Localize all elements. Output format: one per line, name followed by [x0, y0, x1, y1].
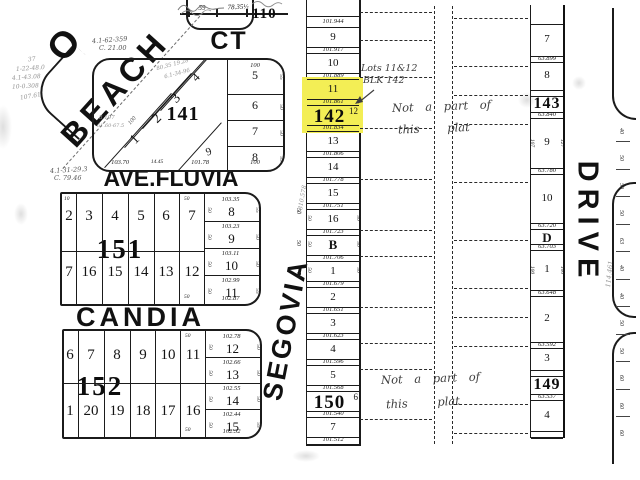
lot-number: 7	[179, 208, 205, 225]
dimension-label: 103.35	[204, 196, 257, 203]
lot-number: 12	[179, 264, 205, 281]
lot-number: 9	[204, 231, 259, 247]
frontage-label: 50	[618, 210, 624, 216]
margin-note: 107.61	[20, 91, 42, 102]
block-152: 152 6789101112019181716102.78125050102.6…	[62, 329, 262, 439]
dimension-label: 100	[227, 62, 283, 69]
tick-mark	[616, 389, 630, 390]
lot-number: 4	[189, 70, 204, 85]
lot-number: 6	[153, 208, 179, 225]
lot-number: 14	[205, 393, 260, 409]
tick-mark	[616, 224, 630, 225]
unplatted-dash-line	[454, 240, 528, 241]
lot-number: 16	[180, 403, 206, 420]
lot-line	[62, 251, 204, 252]
lot-number: 10	[204, 258, 259, 274]
tick-mark	[616, 251, 630, 252]
lot-number: 3	[531, 352, 563, 364]
frontage-label: 50	[207, 370, 213, 376]
frontage-label: 50	[207, 396, 213, 402]
unplatted-dash-line	[454, 346, 528, 347]
unplatted-dash-line	[454, 404, 528, 405]
frontage-label: 40	[618, 128, 624, 134]
unplatted-dash-line	[360, 179, 432, 180]
lot-number: 14	[128, 264, 154, 281]
survey-note: C. 79.46	[54, 174, 81, 182]
lot-number: 1	[127, 132, 143, 148]
margin-note: 10-0.308	[12, 82, 39, 90]
dimension-label: 102.44	[205, 411, 258, 418]
frontage-label: 50	[354, 241, 360, 247]
lot-number: 4	[102, 208, 128, 225]
unplatted-dash-line	[454, 317, 528, 318]
margin-note: 1-22-48.0	[16, 64, 45, 73]
edge-dim: 50	[185, 427, 191, 433]
frontage-label: 50	[295, 272, 301, 278]
lot-number: 20	[78, 403, 104, 420]
lot-number: 7	[78, 347, 104, 364]
lot-number: 12	[349, 106, 358, 116]
unplatted-dash-line	[454, 95, 528, 96]
depth-label: 100	[529, 265, 535, 273]
scan-smudge	[292, 450, 320, 462]
frontage-label: 50	[254, 396, 260, 402]
scan-smudge	[14, 203, 28, 225]
unplatted-dash-line	[360, 343, 432, 344]
unplatted-dash-line	[360, 230, 432, 231]
tick-mark	[616, 416, 630, 417]
lot-number: 8	[104, 347, 130, 364]
dimension-label: 102.78	[205, 333, 258, 340]
frontage-label: 50	[277, 130, 283, 136]
dimension-label: 103.23	[204, 223, 257, 230]
dimension-label: 102.87	[204, 295, 257, 302]
lot-number: 9	[204, 145, 213, 158]
frontage-label: 50	[206, 288, 212, 294]
frontage-label: 50	[277, 104, 283, 110]
depth-label: 127	[559, 138, 565, 146]
lot-number: 13	[153, 264, 179, 281]
lot-line	[64, 383, 205, 384]
frontage-label: 60	[618, 403, 624, 409]
curb-line	[612, 8, 636, 120]
dimension-label: 14.45	[144, 159, 170, 165]
lot-number: 15	[102, 264, 128, 281]
unplatted-dash-line	[452, 6, 453, 444]
lot-number: 5	[307, 369, 359, 381]
street-label-ct: CT	[206, 27, 252, 56]
lot-number: 16	[76, 264, 102, 281]
dimension-label: 101.944	[307, 18, 359, 25]
scan-smudge	[572, 76, 586, 90]
lot-number: 12	[205, 341, 260, 357]
frontage-label: 50	[618, 183, 624, 189]
frontage-label: 55	[253, 288, 259, 294]
edge-dim: 50	[185, 333, 191, 339]
frontage-label: 50	[206, 207, 212, 213]
unplatted-dash-line	[454, 288, 528, 289]
frontage-label: 50	[306, 241, 312, 247]
frontage-label: 50	[354, 215, 360, 221]
unplatted-dash-line	[360, 12, 432, 13]
lot-number: B	[307, 237, 359, 253]
frontage-label: 50	[618, 320, 624, 326]
plat-map: 59 78.35½ 110 O BEACH CT AVE.FLUVIA CAND…	[0, 0, 640, 480]
lot-number: 10	[307, 57, 359, 69]
unplatted-dash-line	[434, 6, 435, 444]
lot-number: 5	[128, 208, 154, 225]
frontage-label: 55	[253, 207, 259, 213]
lot-number: 1	[307, 265, 359, 277]
survey-note: C. 21.00	[99, 44, 126, 52]
tick-mark	[616, 334, 630, 335]
frontage-label: 40	[618, 265, 624, 271]
edge-dim: 10	[64, 196, 70, 202]
frontage-label: 50	[295, 208, 301, 214]
unplatted-dash-line	[360, 40, 432, 41]
lot-number: 11	[307, 83, 359, 95]
lot-number: 8	[204, 204, 259, 220]
block-outline-partial	[186, 0, 254, 30]
frontage-label: 55	[277, 156, 283, 162]
frontage-label: 50	[206, 234, 212, 240]
dimension-label: 103.11	[204, 250, 257, 257]
frontage-label: 50	[254, 370, 260, 376]
unplatted-dash-line	[360, 256, 432, 257]
curb-line	[612, 332, 636, 464]
not-part-note-lower: this plat	[386, 393, 479, 412]
lot-number: 9	[307, 31, 359, 43]
lot-number: 10	[155, 347, 181, 364]
frontage-label: 40	[618, 293, 624, 299]
block-number: 141	[158, 103, 208, 126]
unplatted-dash-line	[454, 124, 528, 125]
lot-number: 6	[354, 392, 359, 402]
lots-callout: Lots 11&12	[361, 63, 417, 74]
lot-number: 9	[130, 347, 156, 364]
drive-block-strip: 763.899814363.840963.7801071271063.720D6…	[530, 5, 565, 438]
unplatted-dash-line	[454, 18, 528, 19]
margin-note: 37	[28, 56, 36, 64]
frontage-label: 60	[618, 375, 624, 381]
frontage-label: 50	[207, 344, 213, 350]
unplatted-dash-line	[360, 419, 432, 420]
unplatted-dash-line	[454, 66, 528, 67]
lot-number: 4	[307, 343, 359, 355]
frontage-label: 50	[618, 155, 624, 161]
lot-number: 3	[307, 317, 359, 329]
pencil-note: 8.197	[99, 115, 115, 121]
unplatted-dash-line	[360, 128, 432, 129]
lot-number: 11	[180, 347, 206, 364]
dimension-label: 100	[234, 159, 276, 166]
lot-number: 19	[104, 403, 130, 420]
frontage-label: 50	[207, 422, 213, 428]
segovia-block-strip: 101.9449101.91710101.88911101.8611421210…	[306, 0, 361, 446]
dimension-label: 102.55	[205, 385, 258, 392]
tick-mark	[616, 361, 630, 362]
unplatted-dash-line	[454, 433, 528, 434]
scan-smudge	[0, 105, 12, 149]
lot-number: 7	[227, 124, 283, 139]
lot-number: 13	[205, 367, 260, 383]
frontage-label: 63	[618, 238, 624, 244]
lot-number: 8	[531, 69, 563, 81]
tick-mark	[616, 306, 630, 307]
lot-number: 3	[76, 208, 102, 225]
block-number: 149	[531, 376, 563, 394]
depth-label: 100	[559, 265, 565, 273]
depth-label: 107	[529, 138, 535, 146]
dimension-label: 102.66	[205, 359, 258, 366]
frontage-label: 50	[253, 234, 259, 240]
tick-mark	[616, 169, 630, 170]
lot-number: 13	[307, 135, 359, 147]
lot-number: 2	[531, 312, 563, 324]
unplatted-dash-line	[360, 77, 432, 78]
lot-number: 4	[531, 409, 563, 421]
lot-line	[227, 94, 283, 95]
lot-number: 2	[307, 291, 359, 303]
not-part-note-lower: Not a part of	[381, 369, 497, 387]
lot-number: 16	[307, 213, 359, 225]
lot-number: 10	[531, 192, 563, 204]
tick-mark	[616, 196, 630, 197]
street-label-drive: DRIVE	[571, 148, 604, 298]
tick-mark	[616, 141, 630, 142]
block-151: 151 23456771615141312103.3585550103.2395…	[60, 192, 261, 306]
edge-dim: 50	[184, 294, 190, 300]
lot-line	[227, 120, 283, 121]
lot-number: 17	[155, 403, 181, 420]
frontage-label: 50	[354, 267, 360, 273]
frontage-label: 50	[295, 240, 301, 246]
unplatted-dash-line	[360, 369, 432, 370]
frontage-label: 60	[618, 430, 624, 436]
curb-line	[612, 182, 636, 318]
unplatted-dash-line	[454, 182, 528, 183]
dimension-label: 102.32	[205, 428, 258, 435]
edge-dim: 50	[184, 196, 190, 202]
depth-label: 100	[127, 116, 137, 127]
lot-number: 6	[227, 98, 283, 113]
frontage-label: 50	[618, 348, 624, 354]
lot-number: 7	[531, 33, 563, 45]
lot-number: 5	[227, 68, 283, 83]
lot-number: 7	[307, 421, 359, 433]
frontage-label: 50	[254, 344, 260, 350]
frontage-label: 50	[206, 261, 212, 267]
dimension-label: 101.512	[307, 436, 359, 443]
strip-line	[307, 444, 359, 446]
frontage-label: 50	[306, 215, 312, 221]
frontage-label: 55	[277, 74, 283, 80]
unplatted-dash-line	[360, 307, 432, 308]
lot-number: 15	[307, 187, 359, 199]
dimension-label: 102.99	[204, 277, 257, 284]
strip-line	[531, 437, 563, 439]
tick-mark	[616, 279, 630, 280]
block-number-partial: 110	[252, 6, 277, 23]
frontage-label: 50	[306, 267, 312, 273]
margin-note: 4.1-43.08	[12, 73, 41, 82]
lot-number: 18	[130, 403, 156, 420]
frontage-label: 55	[254, 422, 260, 428]
block-141: 141 567855505055100103.7014.45101.781001…	[92, 58, 285, 172]
lot-line	[227, 146, 283, 147]
frontage-label: 50	[253, 261, 259, 267]
not-part-note-upper: Not a part of	[392, 97, 504, 115]
block-number: 151	[90, 234, 150, 265]
pencil-note: 61.60-67.5	[97, 123, 124, 129]
lot-number: 14	[307, 161, 359, 173]
